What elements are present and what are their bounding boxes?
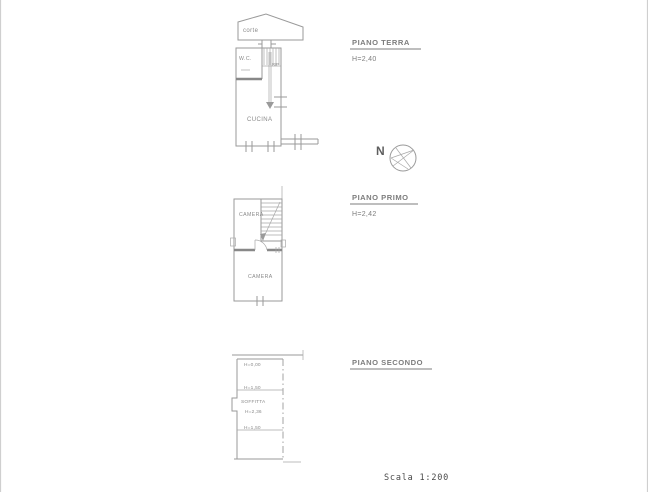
label-h-eaves: H=0,00 <box>244 362 261 368</box>
north-label: N <box>376 144 385 158</box>
room-label-rip: RIP <box>272 62 279 67</box>
floorplan-page: corte W.C. RIP CUCINA PIANO TERRA <box>0 0 648 492</box>
corte-passage <box>258 40 276 48</box>
compass-rose-icon <box>391 148 414 169</box>
room-label-camera-bottom: CAMERA <box>248 274 273 280</box>
primo-left-notch <box>231 238 236 246</box>
height-piano-primo: H=2,42 <box>352 211 377 218</box>
room-label-wc: W.C. <box>239 56 252 62</box>
scale-label: Scala 1:200 <box>384 473 449 483</box>
height-piano-terra: H=2,40 <box>352 56 377 63</box>
north-compass: N <box>376 144 416 171</box>
label-h-back: H=1,50 <box>244 425 261 431</box>
room-label-soffitta: SOFFITTA <box>241 399 266 405</box>
room-label-camera-top: CAMERA <box>239 212 264 218</box>
floor-title-secondo: PIANO SECONDO <box>350 358 432 369</box>
floorplan-drawing: corte W.C. RIP CUCINA PIANO TERRA <box>0 0 648 492</box>
title-piano-primo: PIANO PRIMO <box>352 193 409 202</box>
corte-outline <box>238 14 303 40</box>
title-piano-secondo: PIANO SECONDO <box>352 358 423 367</box>
room-label-cucina: CUCINA <box>247 117 272 123</box>
page-edge-lines <box>1 0 648 492</box>
floor-plan-secondo: H=0,00 H=1,50 SOFFITTA H=2,36 H=1,50 <box>232 350 303 462</box>
terra-wall-extension <box>281 134 318 150</box>
primo-stairs-treads <box>261 203 282 235</box>
label-h-front: H=1,50 <box>244 385 261 391</box>
title-piano-terra: PIANO TERRA <box>352 38 410 47</box>
secondo-left-wall <box>232 359 237 459</box>
terra-stairs-arrow <box>266 102 274 109</box>
floor-plan-terra: corte W.C. RIP CUCINA <box>236 14 318 152</box>
room-label-corte: corte <box>243 28 259 34</box>
floor-title-primo: PIANO PRIMO H=2,42 <box>350 193 418 218</box>
floor-plan-primo: CAMERA CAMERA <box>231 186 286 306</box>
floor-title-terra: PIANO TERRA H=2,40 <box>350 38 421 63</box>
label-h-ridge: H=2,36 <box>245 409 262 415</box>
